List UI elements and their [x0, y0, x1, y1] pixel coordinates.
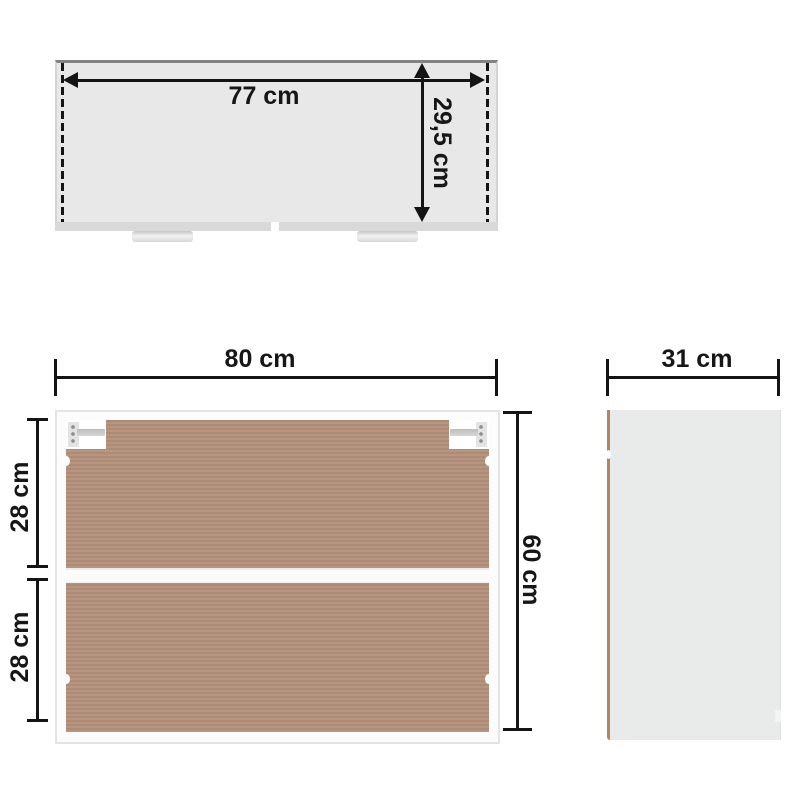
side-view-panel [607, 410, 781, 740]
pin-notch [485, 456, 492, 466]
upper-section-dimension-line [36, 419, 39, 568]
product-dimension-diagram: 77 cm 29,5 cm 80 cm 28 cm 28 cm 60 cm 31… [0, 0, 800, 800]
side-edge-notch [606, 450, 611, 459]
dashed-side-line-right [486, 63, 489, 222]
side-depth-tick-left [606, 359, 609, 396]
cabinet-back-panel-upper [66, 420, 489, 568]
front-width-dimension-line [56, 376, 496, 379]
pin-notch [63, 674, 70, 684]
cabinet-middle-shelf [66, 568, 489, 583]
arrowhead-right-icon [470, 72, 485, 88]
hinge-cap-left-icon [132, 231, 193, 242]
top-depth-label: 29,5 cm [428, 58, 456, 228]
lower-section-label: 28 cm [6, 572, 34, 722]
front-width-label: 80 cm [180, 345, 340, 373]
upper-section-tick-top [27, 418, 48, 421]
hinge-cap-right-icon [357, 231, 418, 242]
top-view-center-notch [271, 222, 279, 231]
front-width-tick-right [495, 359, 498, 396]
cabinet-back-panel-lower [66, 583, 489, 732]
front-height-tick-top [503, 411, 532, 414]
arrowhead-left-icon [63, 72, 78, 88]
top-depth-dimension-line [421, 76, 424, 210]
lower-section-dimension-line [36, 579, 39, 722]
front-height-label: 60 cm [517, 490, 545, 650]
hinge-arm-right-icon [450, 429, 478, 436]
side-depth-dimension-line [608, 376, 779, 379]
top-width-label: 77 cm [184, 82, 344, 110]
pin-notch [63, 456, 70, 466]
front-height-tick-bottom [503, 728, 532, 731]
front-width-tick-left [54, 359, 57, 396]
side-pin-notch [775, 710, 781, 722]
side-depth-label: 31 cm [617, 345, 777, 373]
upper-section-label: 28 cm [6, 422, 34, 572]
hinge-arm-left-icon [77, 429, 105, 436]
side-depth-tick-right [777, 359, 780, 396]
pin-notch [485, 674, 492, 684]
